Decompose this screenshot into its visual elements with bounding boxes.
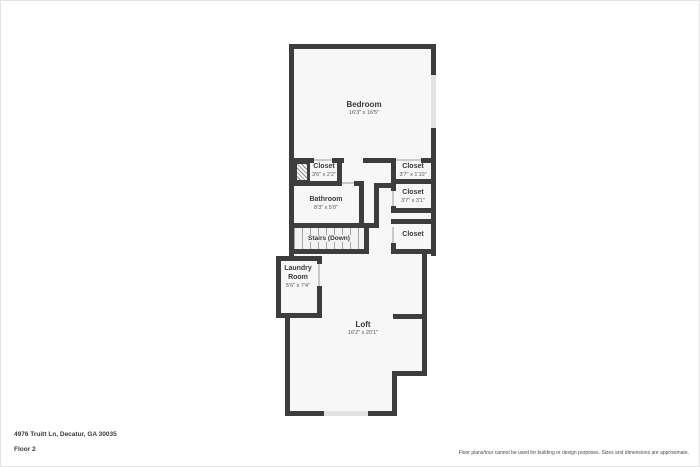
wall bbox=[276, 256, 281, 318]
room-name: Bedroom bbox=[346, 100, 381, 110]
wall bbox=[276, 313, 322, 318]
wall bbox=[276, 256, 322, 261]
wall bbox=[391, 219, 436, 224]
door bbox=[392, 227, 394, 243]
closet1-label: Closet 3'7" x 1'10" bbox=[399, 163, 426, 179]
window bbox=[431, 74, 436, 129]
room-dims: 3'6" x 2'2" bbox=[312, 172, 336, 179]
room-dims: 3'7" x 3'1" bbox=[401, 198, 425, 205]
wall bbox=[391, 249, 432, 254]
room-name: Closet bbox=[402, 231, 423, 240]
closet2-label: Closet 3'7" x 3'1" bbox=[401, 189, 425, 205]
door bbox=[396, 159, 421, 161]
room-dims: 5'6" x 7'4" bbox=[284, 283, 312, 290]
wall bbox=[359, 186, 364, 228]
room-dims: 16'3" x 16'5" bbox=[346, 110, 381, 117]
address-text: 4976 Truitt Ln, Decatur, GA 30035 bbox=[14, 431, 117, 438]
stairs-label: Stairs (Down) bbox=[306, 235, 352, 242]
room-dims: 16'2" x 20'1" bbox=[348, 330, 378, 337]
bedroom-label: Bedroom 16'3" x 16'5" bbox=[346, 100, 381, 117]
wall bbox=[391, 179, 436, 184]
room-dims: 3'7" x 1'10" bbox=[399, 172, 426, 179]
door bbox=[314, 159, 332, 161]
disclaimer-text: Floor plans/tour cannot be used for buil… bbox=[459, 450, 689, 456]
room-name: Closet bbox=[401, 189, 425, 198]
wall bbox=[374, 186, 379, 223]
room-name: Room bbox=[284, 274, 312, 283]
wall bbox=[289, 249, 369, 254]
hatched-area bbox=[294, 161, 310, 183]
wall bbox=[391, 158, 396, 191]
floor-number: Floor 2 bbox=[14, 446, 36, 453]
wall bbox=[392, 376, 397, 416]
wall bbox=[317, 286, 322, 318]
room-name: Closet bbox=[312, 163, 336, 172]
door bbox=[342, 182, 354, 184]
floor-plan: Stairs (Down) Bedroom 16'3" x 16'5" Clos… bbox=[0, 0, 700, 467]
room-name: Closet bbox=[399, 163, 426, 172]
wall bbox=[285, 313, 290, 416]
loft-fill-lower bbox=[289, 373, 395, 413]
window bbox=[323, 411, 369, 416]
laundry-label: Laundry Room 5'6" x 7'4" bbox=[284, 265, 312, 289]
room-name: Bathroom bbox=[309, 196, 342, 205]
wall bbox=[289, 44, 436, 49]
wall bbox=[391, 208, 436, 213]
room-name: Loft bbox=[348, 320, 378, 330]
door bbox=[318, 264, 320, 286]
bedroom-closet-label: Closet 3'6" x 2'2" bbox=[312, 163, 336, 179]
room-dims: 8'3" x 5'0" bbox=[309, 205, 342, 212]
loft-label: Loft 16'2" x 20'1" bbox=[348, 320, 378, 337]
door bbox=[392, 191, 394, 206]
bathroom-label: Bathroom 8'3" x 5'0" bbox=[309, 196, 342, 212]
closet3-label: Closet bbox=[402, 231, 423, 240]
wall bbox=[392, 371, 427, 376]
room-name: Laundry bbox=[284, 265, 312, 274]
wall bbox=[317, 256, 322, 264]
wall bbox=[393, 314, 425, 319]
